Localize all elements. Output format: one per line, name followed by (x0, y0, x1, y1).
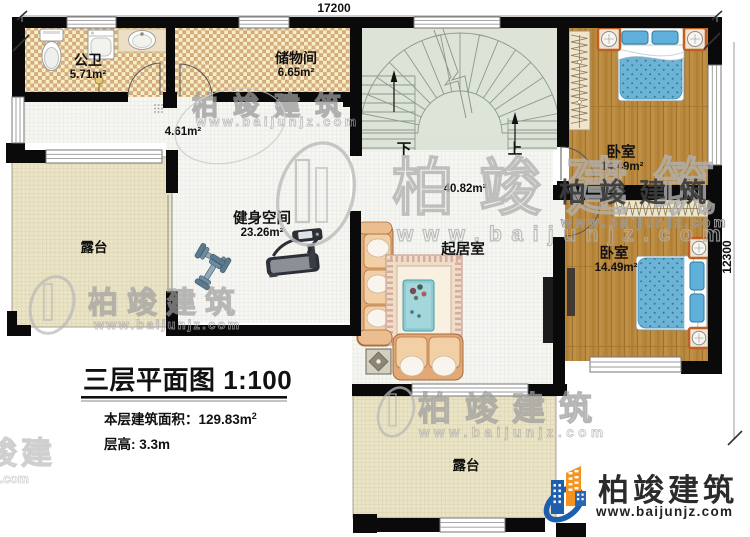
svg-text:12300: 12300 (720, 240, 734, 274)
svg-text:储物间: 储物间 (274, 50, 317, 66)
svg-text:三层平面图 1:100: 三层平面图 1:100 (83, 365, 292, 395)
svg-text:14.49m²: 14.49m² (595, 262, 638, 274)
svg-text:露台: 露台 (453, 457, 480, 473)
svg-text:www.baijunjz.com: www.baijunjz.com (195, 114, 359, 129)
svg-text:柏竣建筑: 柏竣建筑 (418, 390, 606, 427)
svg-text:www.baijunjz.com: www.baijunjz.com (93, 317, 241, 332)
svg-text:23.26m²: 23.26m² (241, 227, 284, 239)
svg-text:柏竣建筑: 柏竣建筑 (559, 177, 719, 208)
svg-text:柏竣建筑: 柏竣建筑 (598, 473, 738, 508)
svg-text:17200: 17200 (317, 1, 351, 15)
svg-text:jz.com: jz.com (0, 472, 29, 486)
svg-text:公卫: 公卫 (74, 52, 102, 68)
svg-text:本层建筑面积：129.83m2: 本层建筑面积：129.83m2 (104, 411, 257, 427)
svg-text:卧室: 卧室 (600, 244, 629, 262)
svg-text:竣建: 竣建 (0, 436, 56, 471)
svg-text:6.65m²: 6.65m² (278, 67, 315, 79)
svg-text:www.baijunjz.com: www.baijunjz.com (418, 425, 608, 440)
svg-text:露台: 露台 (81, 239, 108, 255)
svg-text:www.baijunjz.com: www.baijunjz.com (595, 504, 733, 519)
svg-text:www.baijunjz.com: www.baijunjz.com (560, 215, 729, 230)
svg-text:柏竣建筑: 柏竣建筑 (88, 286, 244, 320)
svg-text:层高: 3.3m: 层高: 3.3m (104, 436, 170, 452)
svg-text:5.71m²: 5.71m² (70, 69, 107, 81)
